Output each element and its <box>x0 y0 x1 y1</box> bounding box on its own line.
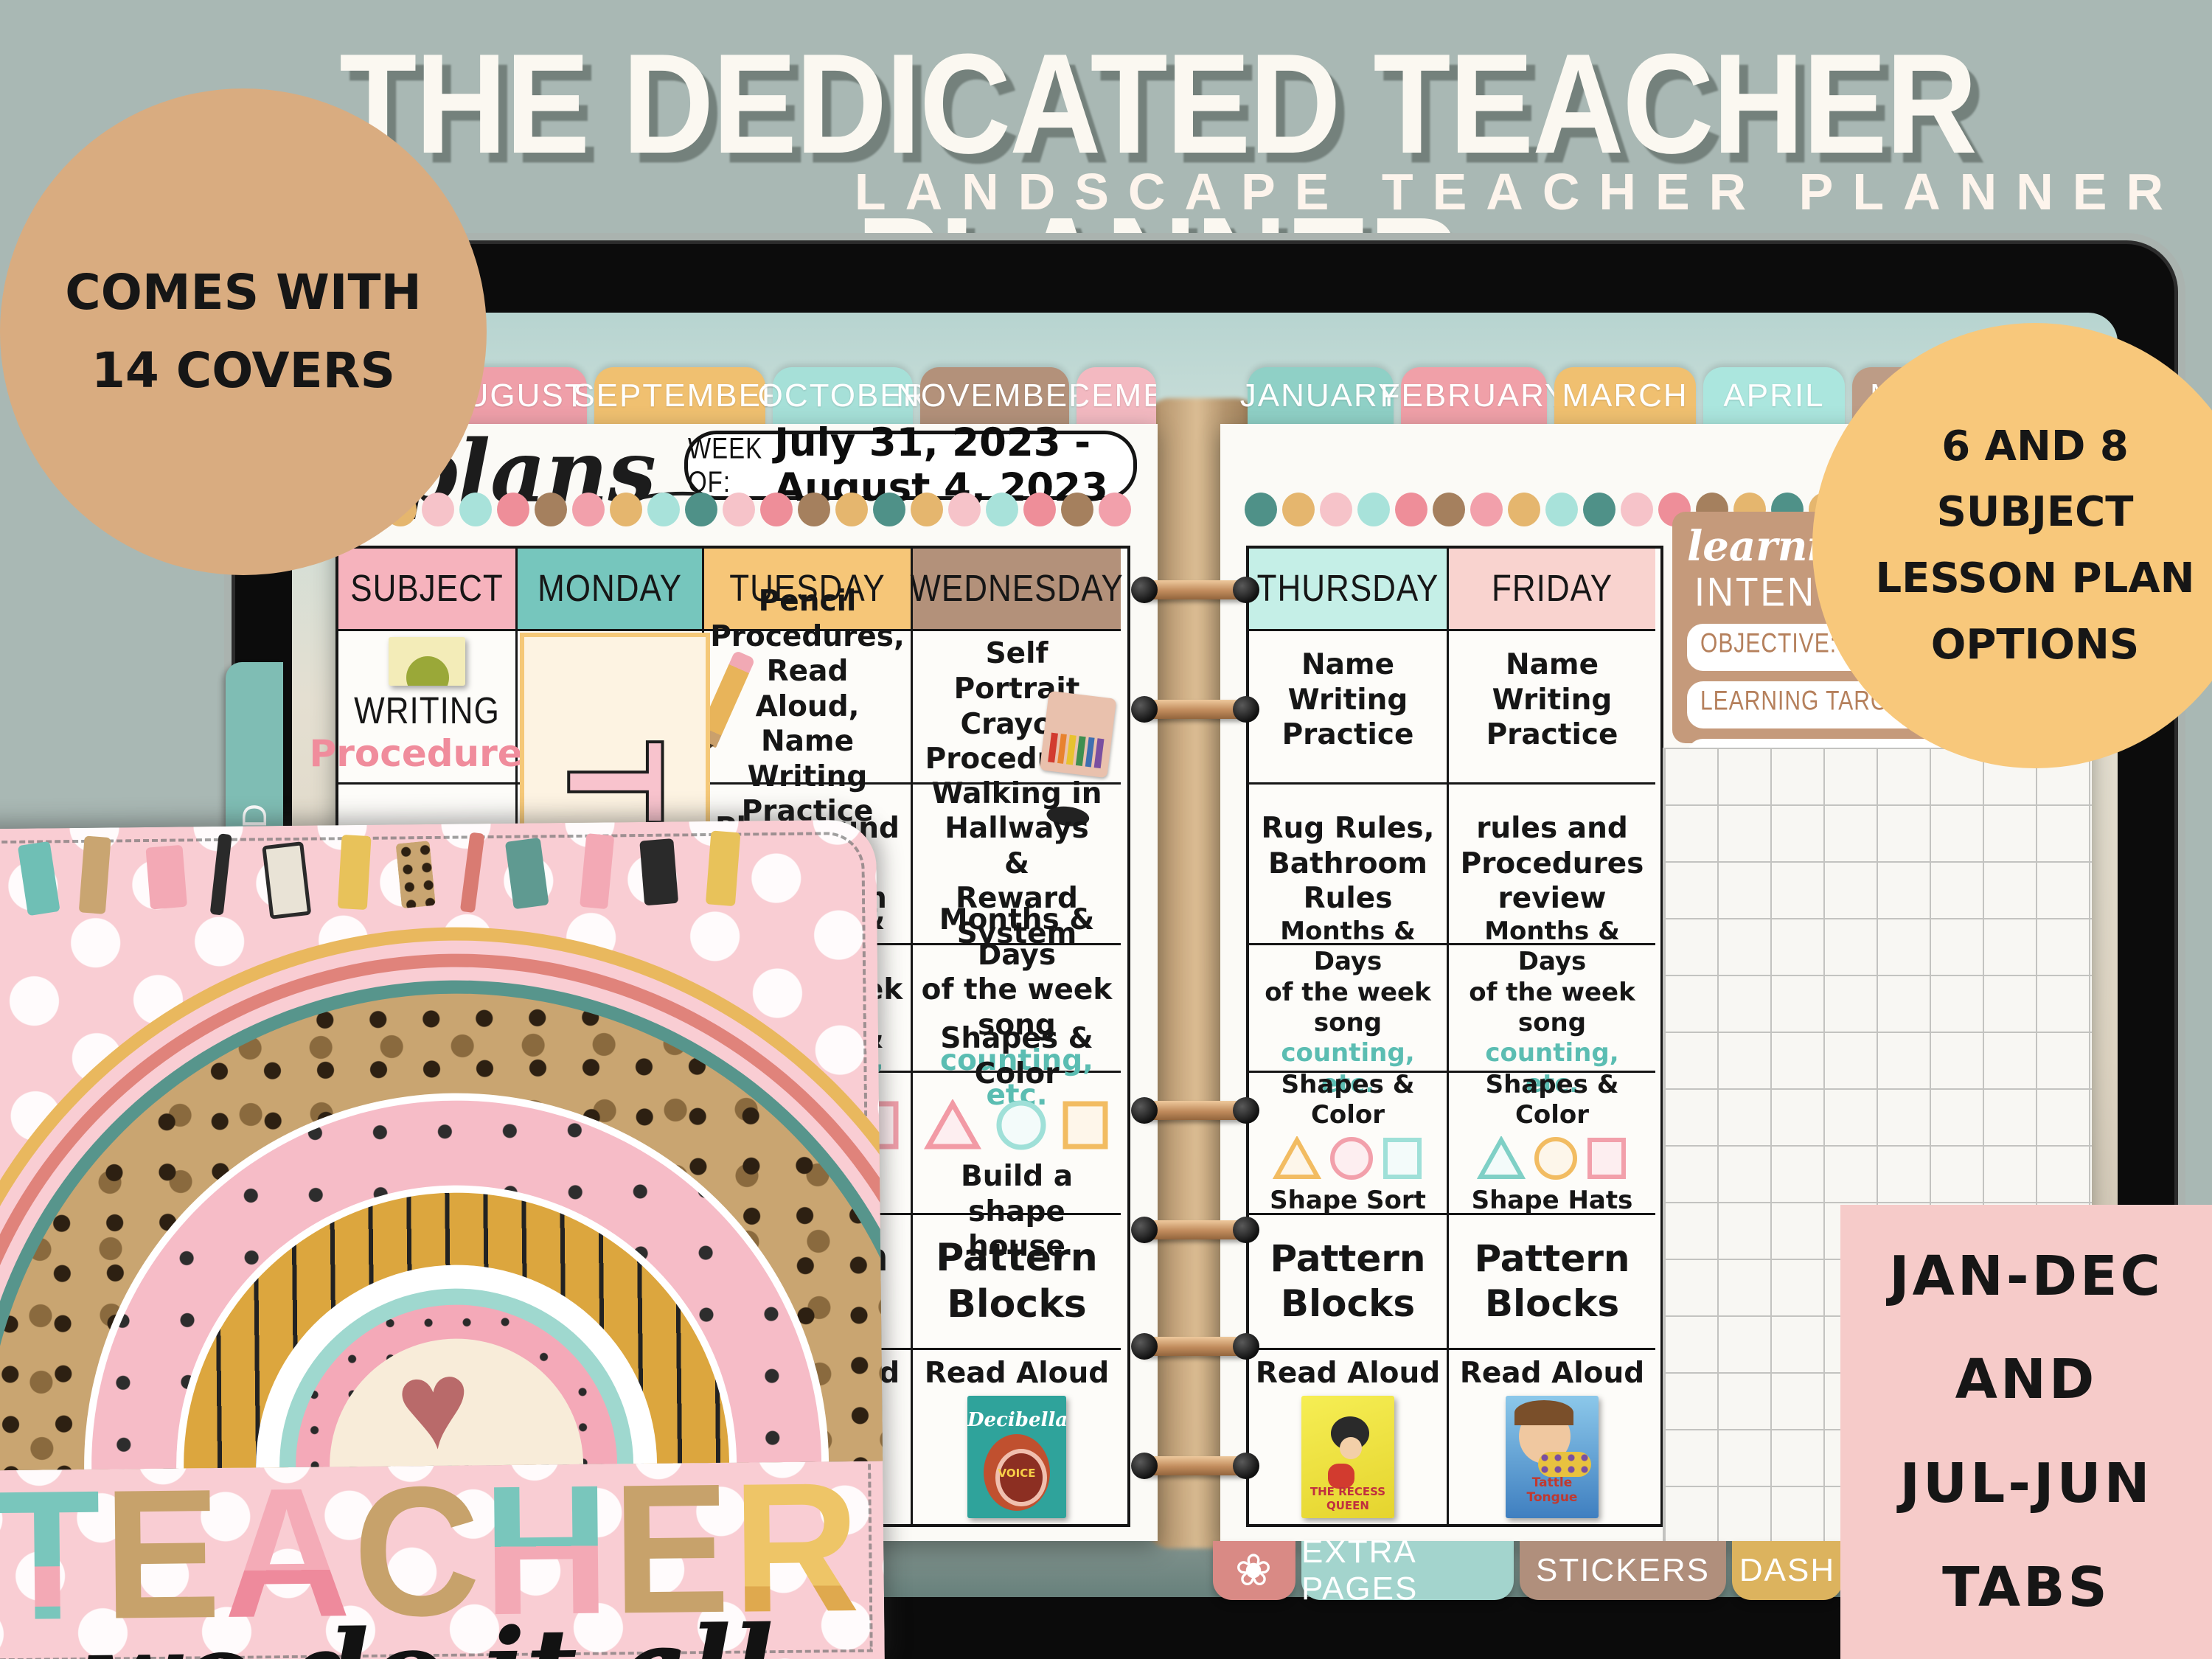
friday-cell-5: Pattern Blocks <box>1449 1215 1655 1350</box>
triangle-shape <box>1273 1136 1321 1180</box>
badge-comes-with-covers: COMES WITH 14 COVERS <box>0 88 487 575</box>
tab-stickers[interactable]: STICKERS <box>1520 1541 1726 1600</box>
wednesday-cell-6: Read Aloud Decibella VOICE <box>913 1350 1121 1524</box>
square-shape <box>1061 1099 1110 1151</box>
circle-shape <box>1329 1135 1374 1181</box>
thursday-cell-4: Shapes & Color Shape Sort <box>1249 1073 1449 1215</box>
tab-dashboard-bottom[interactable]: DASH <box>1732 1541 1843 1600</box>
week-of-label: WEEK OF: <box>688 431 762 498</box>
thursday-cell-1: Name Writing Practice <box>1249 631 1449 785</box>
triangle-shape <box>1477 1136 1526 1180</box>
friday-cell-1: Name Writing Practice <box>1449 631 1655 785</box>
thursday-cell-3: Months & Days of the week song counting,… <box>1249 945 1449 1073</box>
page-subtitle: LANDSCAPE TEACHER PLANNER <box>737 162 2183 221</box>
col-header-subject: SUBJECT <box>338 549 518 631</box>
circle-shape <box>1533 1135 1579 1181</box>
subject-writing-label: WRITING <box>354 689 500 734</box>
book-decibella: Decibella VOICE <box>967 1396 1066 1518</box>
crayon-box-icon <box>1040 691 1116 778</box>
right-lesson-table: THURSDAY FRIDAY Name Writing Practice Na… <box>1246 546 1663 1527</box>
square-shape <box>1586 1136 1627 1180</box>
badge-jan-dec-tabs: JAN-DEC AND JUL-JUN TABS <box>1840 1205 2212 1659</box>
planner-cover: ♥ T E A C H E R we do it all <box>0 820 885 1659</box>
circle-shape <box>995 1099 1048 1152</box>
subject-writing-sub: Procedures <box>310 731 545 776</box>
flower-icon: ❀ <box>1235 1545 1273 1596</box>
subject-cell-writing: WRITING Procedures <box>338 631 518 785</box>
col-header-friday: FRIDAY <box>1449 549 1655 631</box>
rainbow-graphic: ♥ <box>0 914 885 1471</box>
friday-cell-6: Read Aloud Tattle Tongue <box>1449 1350 1655 1524</box>
week-of-field[interactable]: WEEK OF: July 31, 2023 - August 4, 2023 <box>684 431 1137 500</box>
book-flower <box>406 656 449 686</box>
col-header-monday: MONDAY <box>518 549 704 631</box>
wednesday-cell-5: Pattern Blocks <box>913 1215 1121 1350</box>
wednesday-cell-4: Shapes & Color Build a shape house <box>913 1073 1121 1215</box>
friday-cell-3: Months & Days of the week song counting,… <box>1449 945 1655 1073</box>
tab-flower[interactable]: ❀ <box>1213 1541 1295 1600</box>
col-header-thursday: THURSDAY <box>1249 549 1449 631</box>
book-tattle-tongue: Tattle Tongue <box>1506 1396 1599 1518</box>
marketing-graphic: THE DEDICATED TEACHER PLANNER LANDSCAPE … <box>0 0 2212 1659</box>
triangle-shape <box>924 1099 981 1151</box>
book-chrysanthemum <box>389 637 465 686</box>
book-recess-queen: THE RECESS QUEEN <box>1301 1396 1394 1518</box>
wednesday-cell-1: Self Portrait Crayon Procedures <box>913 631 1121 785</box>
square-shape <box>1382 1136 1423 1180</box>
tuesday-cell-1: Pencil Procedures, Read Aloud, Name Writ… <box>704 631 913 785</box>
col-header-wednesday: WEDNESDAY <box>913 549 1121 631</box>
thursday-cell-6: Read Aloud THE RECESS QUEEN <box>1249 1350 1449 1524</box>
dot-strip-left <box>347 493 1150 529</box>
friday-cell-4: Shapes & Color Shape Hats <box>1449 1073 1655 1215</box>
thursday-cell-5: Pattern Blocks <box>1249 1215 1449 1350</box>
cover-tagline: we do it all <box>23 1600 835 1659</box>
tab-extra-pages[interactable]: EXTRA PAGES <box>1301 1541 1514 1600</box>
